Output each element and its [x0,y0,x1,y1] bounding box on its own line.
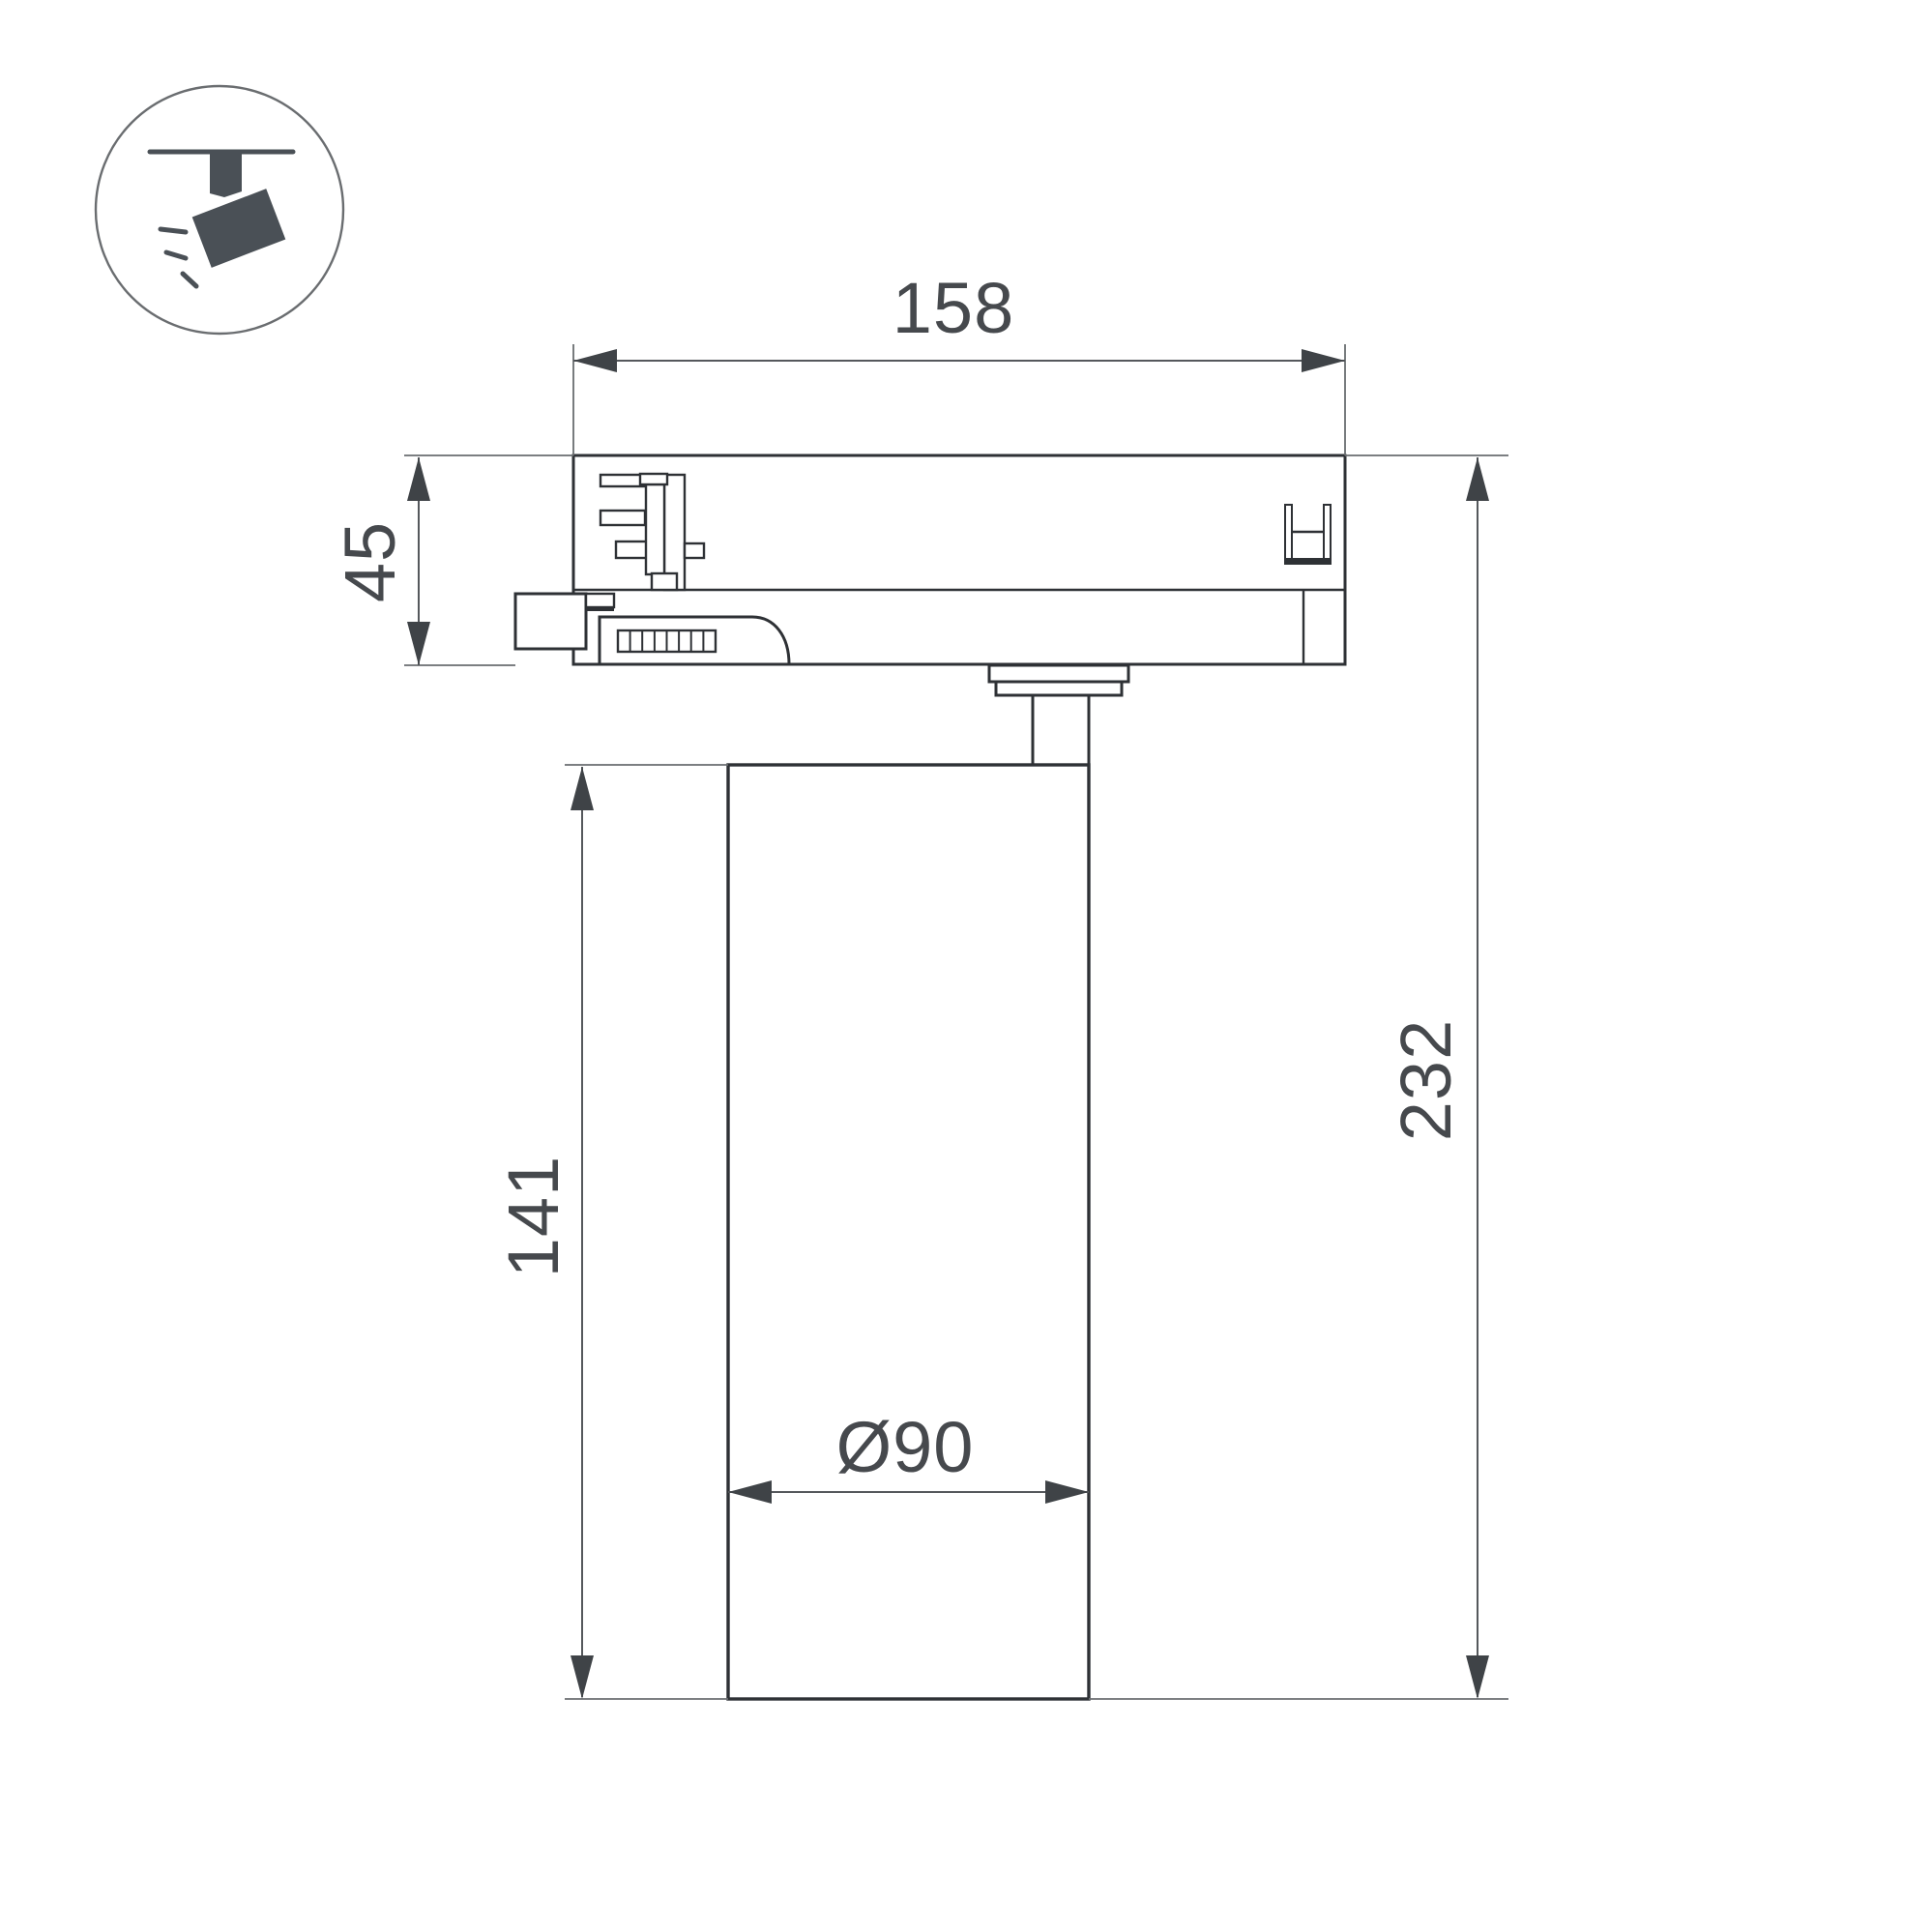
arrow-left-icon [573,349,617,372]
contact-screw-shaft [646,484,664,574]
rotary-knob [600,617,789,664]
stem [1033,695,1089,765]
contact-prong-middle [600,511,645,525]
track-stub [210,152,242,197]
contact-prong-top [600,475,645,486]
locking-lever [515,594,586,649]
contact-tab [685,543,704,558]
mount-step-lower [996,682,1122,695]
dim-label-total-height: 232 [1386,1019,1466,1141]
track-spotlight-icon [96,86,343,334]
mount-stem [989,665,1128,765]
arrow-up-icon [571,767,594,810]
contact-prong-bottom [616,542,647,558]
contact-screw-foot [652,573,677,590]
arrow-down-icon [571,1655,594,1699]
track-adapter [515,455,1345,664]
contact-screw-cap [640,474,667,484]
lamp-body-cylinder [728,765,1089,1699]
arrow-down-icon [1466,1655,1489,1699]
arrow-right-icon [1302,349,1345,372]
dimension-body-height: 141 [493,765,728,1699]
dim-label-adapter-width: 158 [893,268,1014,348]
drawing-svg: 158 45 141 232 Ø90 [0,0,1932,1932]
dimension-adapter-width: 158 [573,268,1345,455]
technical-drawing-page: 158 45 141 232 Ø90 [0,0,1932,1932]
dim-label-body-diameter: Ø90 [836,1407,975,1487]
dim-label-adapter-height: 45 [330,521,410,602]
arrow-down-icon [407,622,430,665]
arrow-up-icon [407,457,430,501]
arrow-up-icon [1466,457,1489,501]
mount-step-upper [989,665,1128,682]
dim-label-body-height: 141 [493,1156,573,1277]
lever-latch [586,594,614,607]
lever-latch-bar [586,606,614,611]
